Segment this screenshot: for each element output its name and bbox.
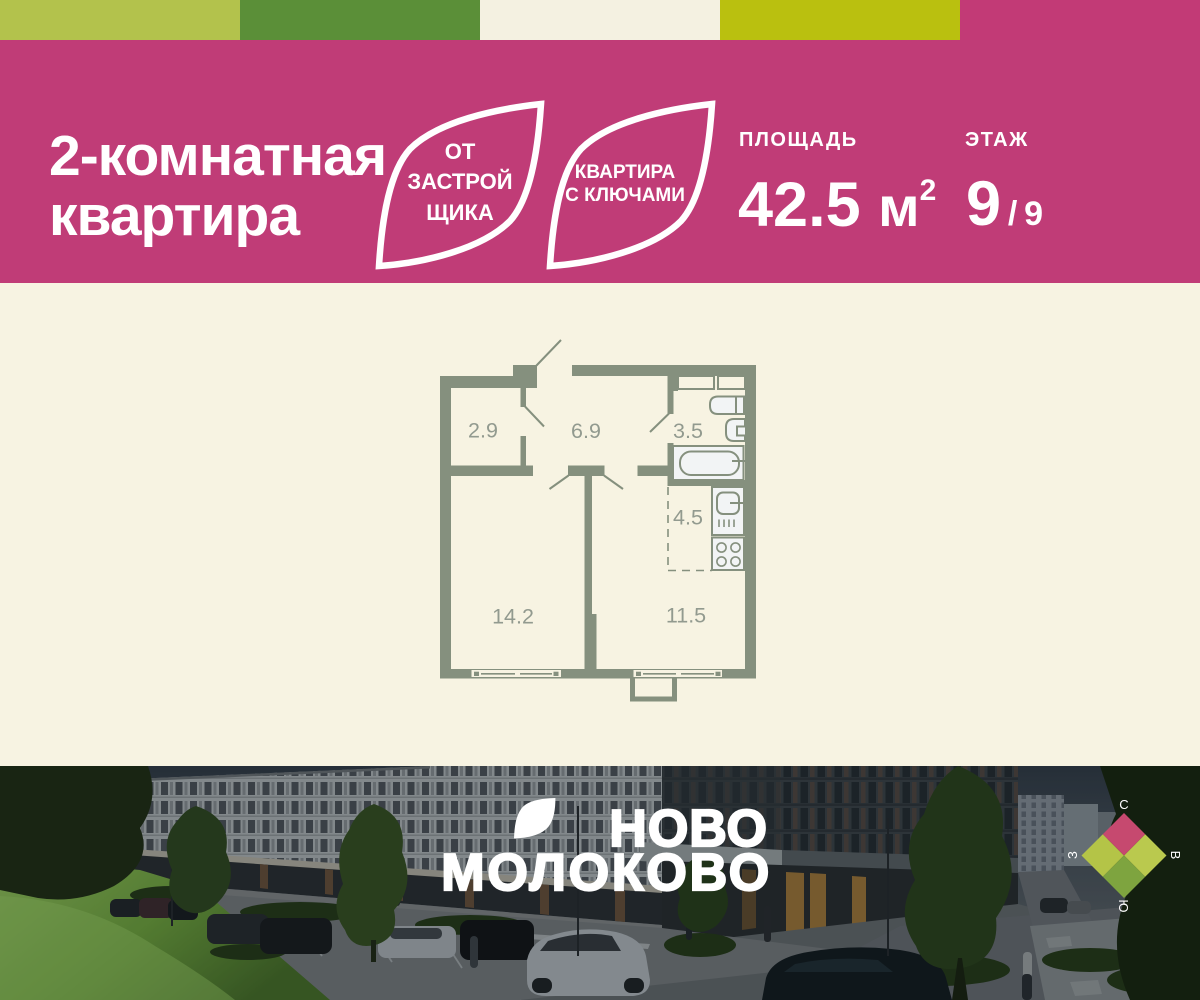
svg-text:4.5: 4.5 xyxy=(673,506,703,530)
svg-text:С КЛЮЧАМИ: С КЛЮЧАМИ xyxy=(565,185,685,206)
svg-text:6.9: 6.9 xyxy=(571,419,601,443)
svg-text:ЗАСТРОЙ: ЗАСТРОЙ xyxy=(407,169,512,194)
svg-text:ОТ: ОТ xyxy=(445,139,476,164)
svg-text:ЩИКА: ЩИКА xyxy=(426,200,494,225)
svg-text:З: З xyxy=(1065,851,1080,859)
svg-text:14.2: 14.2 xyxy=(492,605,534,629)
svg-text:В: В xyxy=(1168,851,1183,860)
svg-text:Ю: Ю xyxy=(1116,899,1131,912)
svg-text:МОЛОКОВО: МОЛОКОВО xyxy=(441,844,772,902)
svg-text:3.5: 3.5 xyxy=(673,419,703,443)
svg-text:11.5: 11.5 xyxy=(666,604,706,628)
svg-text:КВАРТИРА: КВАРТИРА xyxy=(575,162,676,183)
svg-text:2.9: 2.9 xyxy=(468,419,498,443)
svg-text:С: С xyxy=(1119,797,1128,812)
